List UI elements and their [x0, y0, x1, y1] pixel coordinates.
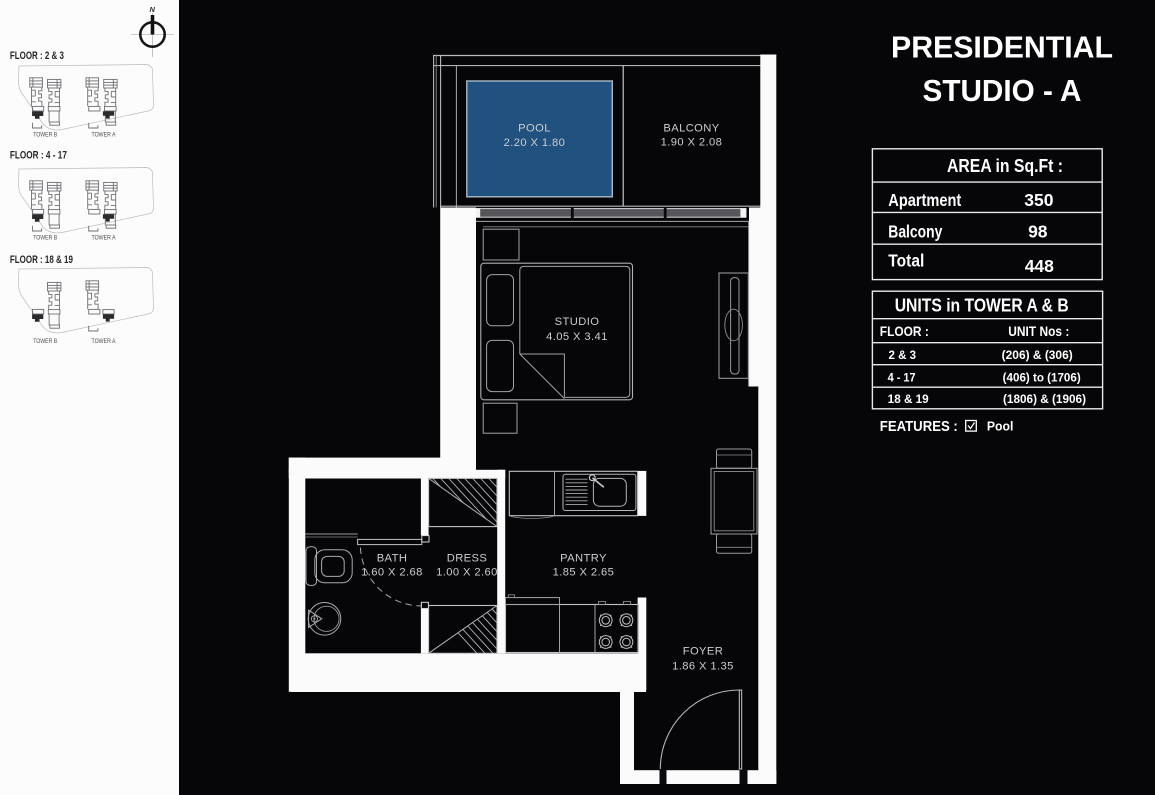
- svg-text:UNIT Nos :: UNIT Nos :: [1008, 323, 1069, 339]
- svg-text:TOWER A: TOWER A: [92, 132, 117, 139]
- svg-text:POOL: POOL: [518, 123, 551, 135]
- svg-text:FLOOR : 18 & 19: FLOOR : 18 & 19: [10, 254, 73, 266]
- svg-text:TOWER A: TOWER A: [92, 338, 117, 345]
- svg-text:TOWER A: TOWER A: [92, 235, 117, 242]
- svg-text:TOWER B: TOWER B: [33, 338, 57, 345]
- svg-text:FOYER: FOYER: [683, 646, 724, 658]
- svg-text:FEATURES :: FEATURES :: [880, 418, 958, 435]
- svg-text:N: N: [150, 5, 156, 14]
- svg-text:1.85 X 2.65: 1.85 X 2.65: [553, 567, 615, 579]
- svg-text:STUDIO - A: STUDIO - A: [923, 73, 1082, 108]
- svg-text:AREA in Sq.Ft :: AREA in Sq.Ft :: [947, 156, 1063, 176]
- svg-text:STUDIO: STUDIO: [555, 316, 600, 328]
- svg-text:BALCONY: BALCONY: [663, 123, 719, 135]
- svg-text:TOWER B: TOWER B: [33, 235, 57, 242]
- svg-text:Balcony: Balcony: [888, 222, 942, 242]
- svg-text:UNITS in TOWER A & B: UNITS in TOWER A & B: [895, 296, 1069, 316]
- svg-text:TOWER B: TOWER B: [33, 132, 57, 139]
- svg-text:448: 448: [1025, 256, 1054, 276]
- svg-text:FLOOR :: FLOOR :: [880, 323, 929, 339]
- svg-text:1.00 X 2.60: 1.00 X 2.60: [436, 567, 498, 579]
- svg-text:Apartment: Apartment: [888, 190, 961, 210]
- svg-text:(206) & (306): (206) & (306): [1002, 350, 1073, 362]
- svg-text:4 - 17: 4 - 17: [888, 372, 916, 384]
- svg-text:(1806) & (1906): (1806) & (1906): [1003, 394, 1086, 406]
- svg-text:(406) to (1706): (406) to (1706): [1003, 372, 1081, 384]
- svg-text:DRESS: DRESS: [447, 553, 488, 565]
- svg-text:2 & 3: 2 & 3: [889, 350, 917, 362]
- svg-text:FLOOR : 4 - 17: FLOOR : 4 - 17: [10, 150, 67, 162]
- svg-text:Pool: Pool: [987, 418, 1014, 433]
- svg-text:98: 98: [1028, 222, 1048, 242]
- svg-text:1.86 X 1.35: 1.86 X 1.35: [672, 661, 734, 673]
- svg-text:PANTRY: PANTRY: [560, 553, 607, 565]
- svg-text:2.20 X 1.80: 2.20 X 1.80: [504, 137, 566, 149]
- svg-text:1.60 X 2.68: 1.60 X 2.68: [361, 567, 423, 579]
- svg-text:1.90 X 2.08: 1.90 X 2.08: [661, 137, 723, 149]
- svg-text:FLOOR : 2 & 3: FLOOR : 2 & 3: [10, 50, 64, 62]
- svg-text:350: 350: [1024, 190, 1053, 210]
- svg-text:18 & 19: 18 & 19: [888, 394, 929, 406]
- svg-text:Total: Total: [888, 251, 924, 271]
- svg-text:4.05 X 3.41: 4.05 X 3.41: [546, 331, 608, 343]
- svg-text:BATH: BATH: [377, 553, 408, 565]
- svg-text:PRESIDENTIAL: PRESIDENTIAL: [891, 30, 1113, 65]
